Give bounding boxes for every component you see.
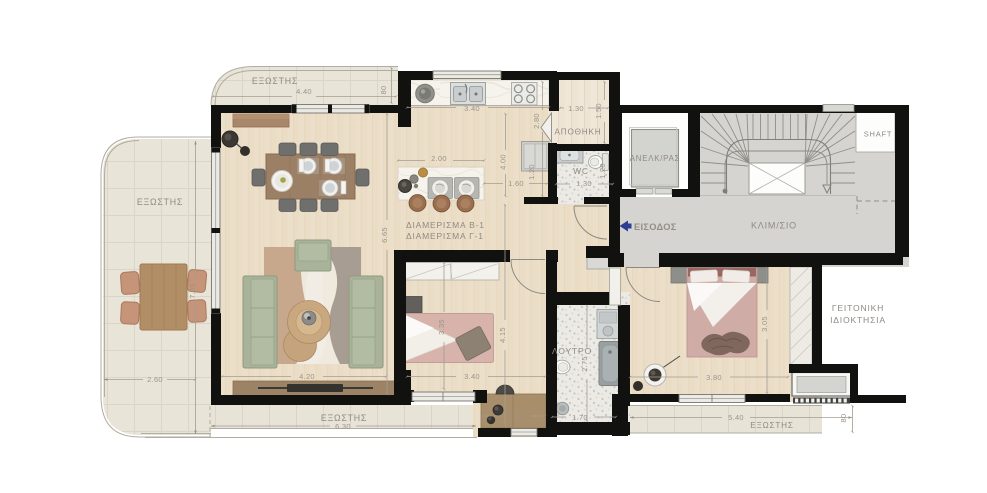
svg-text:2.80: 2.80 — [532, 113, 541, 129]
svg-text:3.35: 3.35 — [437, 319, 446, 335]
svg-text:ΙΔΙΟΚΤΗΣΙΑ: ΙΔΙΟΚΤΗΣΙΑ — [830, 315, 886, 325]
svg-text:6.30: 6.30 — [335, 422, 351, 431]
svg-text:ΕΞΩΣΤΗΣ: ΕΞΩΣΤΗΣ — [750, 421, 794, 430]
svg-text:ΕΙΣΟΔΟΣ: ΕΙΣΟΔΟΣ — [634, 222, 677, 232]
svg-text:6.65: 6.65 — [380, 227, 389, 243]
svg-text:1.60: 1.60 — [508, 179, 524, 188]
svg-text:1.30: 1.30 — [576, 179, 592, 188]
svg-text:1.20: 1.20 — [527, 164, 536, 180]
svg-text:80: 80 — [839, 414, 848, 423]
svg-text:ΑΝΕΛΚ/ΡΑΣ: ΑΝΕΛΚ/ΡΑΣ — [630, 154, 680, 163]
svg-text:ΑΠΟΘΗΚΗ: ΑΠΟΘΗΚΗ — [555, 128, 602, 137]
svg-text:2.60: 2.60 — [147, 375, 163, 384]
svg-text:1.50: 1.50 — [508, 412, 524, 421]
svg-text:1.70: 1.70 — [572, 413, 588, 422]
svg-text:5.40: 5.40 — [728, 413, 744, 422]
svg-text:ΚΛΙΜ/ΣΙΟ: ΚΛΙΜ/ΣΙΟ — [751, 221, 797, 231]
svg-text:1.30: 1.30 — [568, 104, 584, 113]
svg-text:2.00: 2.00 — [431, 154, 447, 163]
svg-text:4.15: 4.15 — [498, 327, 507, 343]
svg-text:3.05: 3.05 — [760, 316, 769, 332]
svg-text:ΔΙΑΜΕΡΙΣΜΑ Γ-1: ΔΙΑΜΕΡΙΣΜΑ Γ-1 — [406, 231, 484, 241]
svg-text:ΔΙΑΜΕΡΙΣΜΑ Β-1: ΔΙΑΜΕΡΙΣΜΑ Β-1 — [406, 220, 485, 230]
svg-text:ΕΞΩΣΤΗΣ: ΕΞΩΣΤΗΣ — [252, 76, 298, 86]
svg-text:4.00: 4.00 — [499, 154, 508, 170]
svg-text:ΕΞΩΣΤΗΣ: ΕΞΩΣΤΗΣ — [137, 197, 183, 207]
svg-text:3.40: 3.40 — [464, 372, 480, 381]
svg-text:4.40: 4.40 — [296, 87, 312, 96]
svg-text:3.40: 3.40 — [464, 104, 480, 113]
svg-text:80: 80 — [379, 86, 388, 95]
svg-text:1.20: 1.20 — [598, 163, 607, 179]
svg-text:ΓΕΙΤΟΝΙΚΗ: ΓΕΙΤΟΝΙΚΗ — [832, 303, 884, 313]
svg-text:WC: WC — [573, 166, 589, 176]
svg-text:3.80: 3.80 — [706, 373, 722, 382]
svg-text:ΛΟΥΤΡΟ: ΛΟΥΤΡΟ — [552, 346, 592, 356]
svg-text:7.05: 7.05 — [188, 283, 197, 299]
svg-text:1.50: 1.50 — [594, 103, 603, 119]
svg-text:4.20: 4.20 — [299, 372, 315, 381]
svg-text:2.75: 2.75 — [580, 356, 589, 372]
svg-text:SHAFT: SHAFT — [864, 130, 893, 139]
